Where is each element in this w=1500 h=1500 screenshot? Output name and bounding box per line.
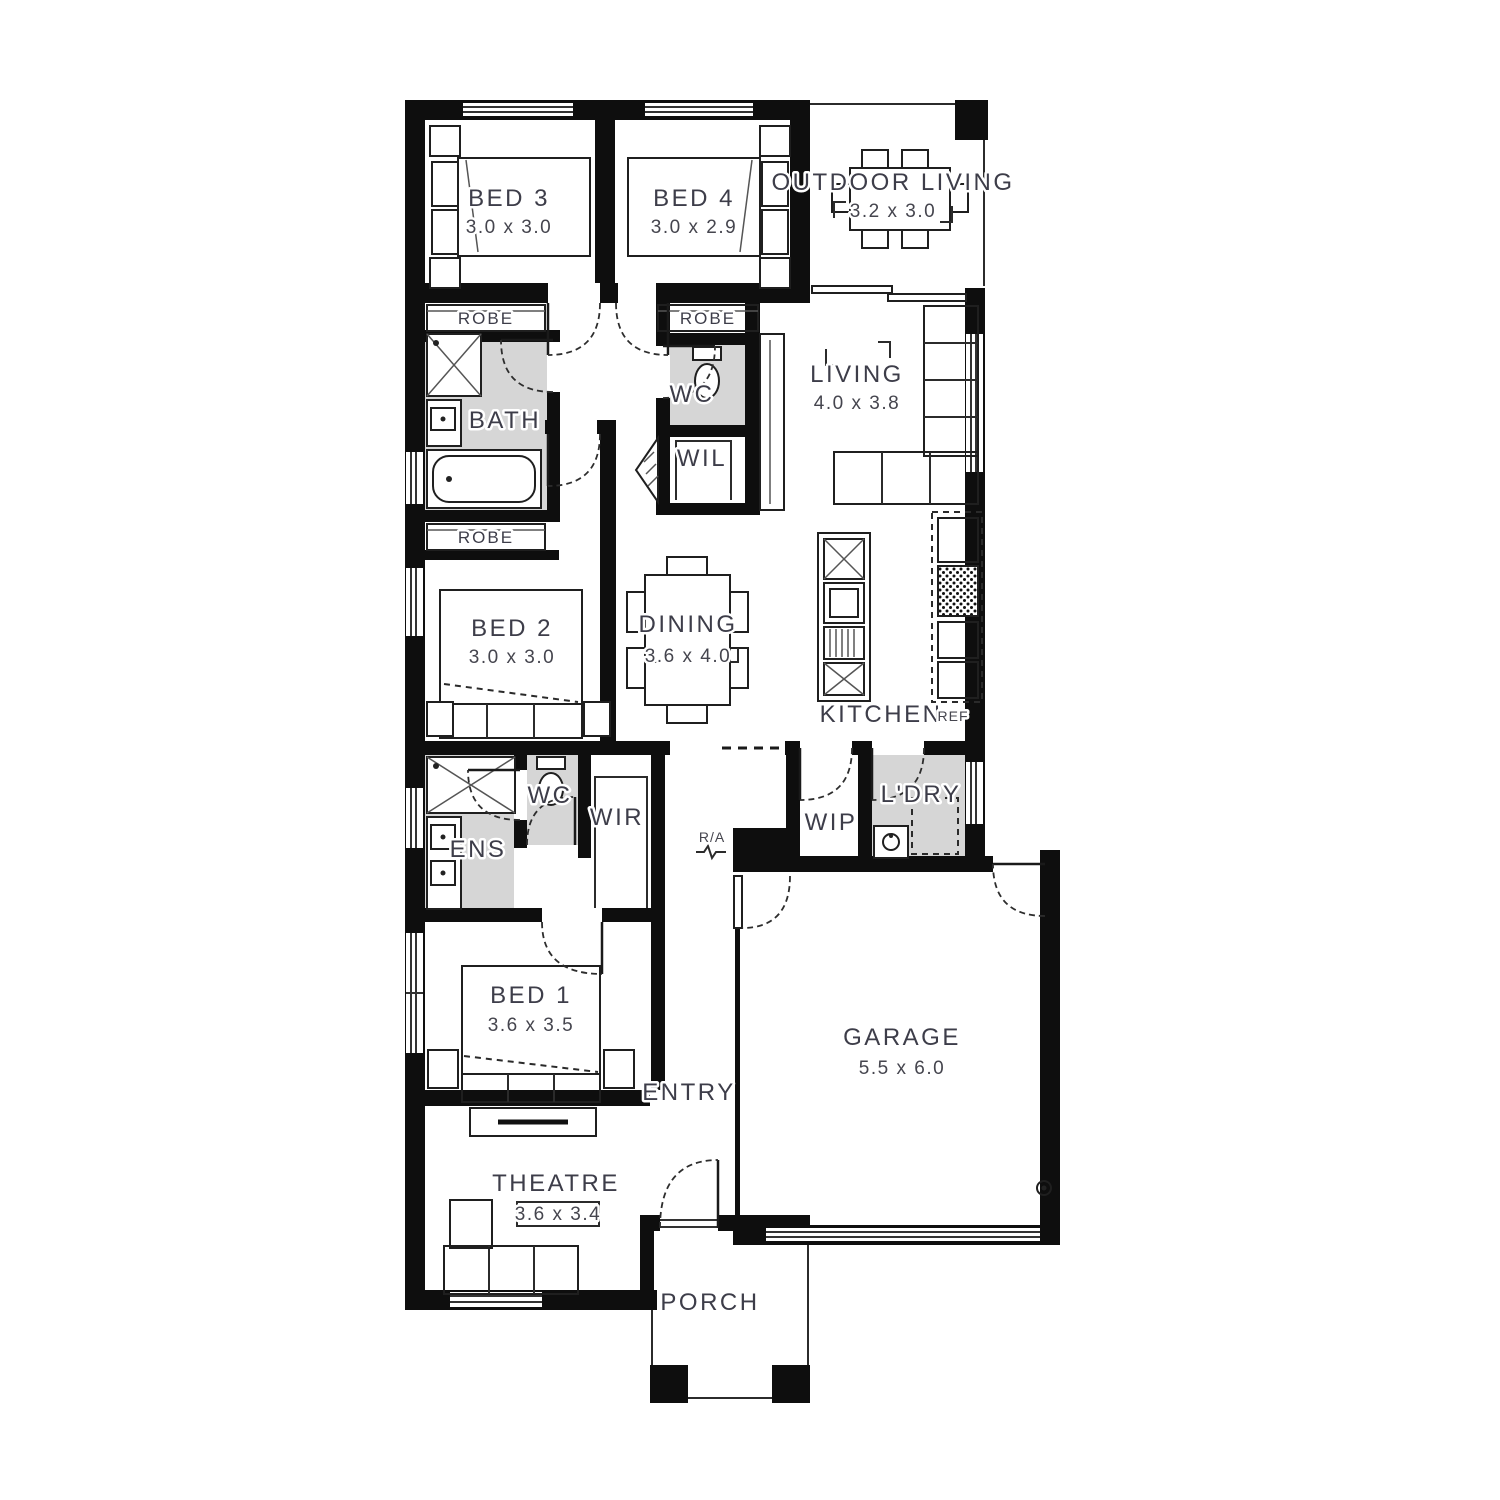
shower-icon [427,757,515,813]
garage-label: GARAGE [843,1024,961,1051]
garage-panel-door [766,1228,1040,1241]
bedside-table-icon [760,258,790,288]
floor-plan-drawing: BED 3 3.0 x 3.0 BED 4 3.0 x 2.9 OUTDOOR … [0,0,1500,1500]
entry-label: ENTRY [642,1079,735,1106]
return-air-icon [696,846,726,858]
tv-cabinet-icon [760,334,784,510]
wc-upper-label: WC [670,381,715,408]
window-bed2 [406,568,423,636]
bed4-label: BED 4 [653,185,735,212]
cistern-icon [537,757,565,769]
laundry-label: L'DRY [881,781,962,808]
theatre-dims: 3.6 x 3.4 [515,1204,601,1225]
bedside-table-icon [430,126,460,156]
bed1-label: BED 1 [490,982,572,1009]
return-air-symbol [696,846,726,858]
wir-shelf [595,777,647,908]
chair-icon [902,150,928,168]
bed1-dims: 3.6 x 3.5 [488,1015,574,1036]
fridge-label: REF [938,708,969,724]
bedside-table-icon [604,1050,634,1088]
wip-label: WIP [805,809,858,836]
sink-icon [824,539,864,579]
theatre-label: THEATRE [492,1170,620,1197]
laundry-trough-icon [874,826,908,858]
bedside-table-icon [760,126,790,156]
wir-label: WIR [590,804,644,831]
pillow-icon [432,162,458,206]
bed3-label: BED 3 [468,185,550,212]
bedside-table-icon [430,258,460,288]
floor-plan-page: BED 3 3.0 x 3.0 BED 4 3.0 x 2.9 OUTDOOR … [0,0,1500,1500]
living-dims: 4.0 x 3.8 [814,393,900,414]
cistern-icon [693,347,721,360]
robe-bed2-label: ROBE [458,528,514,547]
door-bed3 [548,303,600,355]
sofa-icon [444,1246,578,1294]
dining-furniture [627,557,748,723]
sliding-door-outdoor [812,286,966,301]
vanity-icon [427,400,461,446]
dresser-icon [470,1108,596,1136]
outdoor-table-furniture [832,150,968,248]
window-bed4 [645,103,753,116]
robe-bed4-label: ROBE [680,309,736,328]
bedside-table-icon [584,702,610,736]
door-garage-rear [993,864,1045,916]
sink2-icon [824,663,864,695]
living-label: LIVING [810,361,904,388]
chair-icon [627,648,645,688]
bed2-label: BED 2 [471,615,553,642]
return-air-label: R/A [699,829,725,845]
door-wip [800,748,852,800]
sofa-chaise-icon [450,1200,492,1248]
chair-icon [667,557,707,575]
door-front [660,1160,718,1228]
wil-label: WIL [677,445,727,472]
ens-label: ENS [450,836,507,863]
sofa-icon [834,452,978,504]
chair-icon [667,705,707,723]
outdoor-living-dims: 3.2 x 3.0 [850,201,936,222]
chair-icon [862,230,888,248]
bed3-dims: 3.0 x 3.0 [466,217,552,238]
bedside-table-icon [427,702,453,736]
vanity-icon [427,817,461,909]
porch-label: PORCH [660,1289,759,1316]
front-door-threshold [660,1220,718,1227]
bed4-dims: 3.0 x 2.9 [651,217,737,238]
garage-dims: 5.5 x 6.0 [859,1058,945,1079]
door-garage-internal [734,876,790,928]
bed-base-icon [440,704,582,738]
bathtub-icon [427,450,541,508]
outdoor-living-label: OUTDOOR LIVING [771,169,1014,196]
dishwasher-icon [824,627,864,659]
bedside-table-icon [428,1050,458,1088]
chair-icon [862,150,888,168]
chair-icon [902,230,928,248]
window-ens [406,788,423,848]
dining-label: DINING [639,611,738,638]
robe-shelf-icon [595,777,647,908]
pillow-icon [762,210,788,254]
cooktop-icon [938,566,978,616]
kitchen-island [818,533,870,701]
table-icon [645,575,730,705]
window-bed1 [406,933,423,1053]
wc-lower-label: WC [528,782,573,809]
kitchen-label: KITCHEN [820,701,943,728]
pillow-icon [432,210,458,254]
dining-dims: 3.6 x 4.0 [645,646,731,667]
bifold-door-icon [636,438,658,502]
bath-label: BATH [469,407,541,434]
robe-bed3-label: ROBE [458,309,514,328]
window-laundry [966,762,983,824]
window-bed3 [463,103,573,116]
window-bath [406,452,423,504]
bed2-dims: 3.0 x 3.0 [469,647,555,668]
shower-icon [427,334,481,396]
